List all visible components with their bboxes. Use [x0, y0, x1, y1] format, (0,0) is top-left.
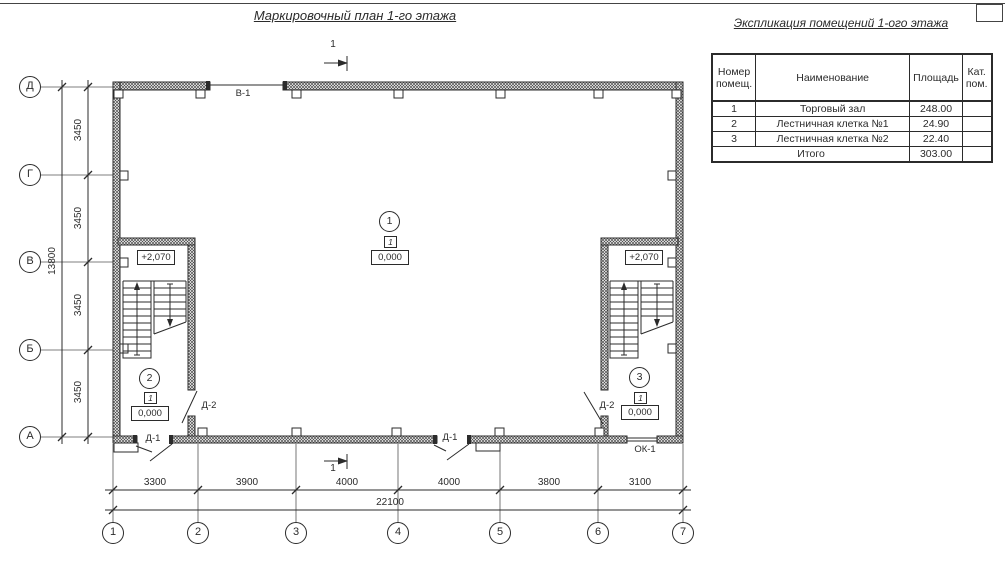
- room-tag-box: 1: [144, 392, 157, 404]
- axis-col-bubble: 7: [672, 522, 694, 544]
- drawing-sheet: Маркировочный план 1-го этажа Экспликаци…: [0, 0, 1005, 565]
- door-label-d2: Д-2: [595, 401, 619, 411]
- dim-bottom-total: 22100: [360, 498, 420, 508]
- window-openings: [210, 85, 657, 441]
- axis-row-bubble: Б: [19, 339, 41, 361]
- window-label-ok1: ОК-1: [629, 445, 661, 455]
- axis-row-bubble: В: [19, 251, 41, 273]
- upper-elevation-box: +2,070: [625, 250, 663, 265]
- dim-bottom-segment: 3300: [125, 478, 185, 488]
- room-number-bubble: 2: [139, 368, 160, 389]
- axis-col-bubble: 4: [387, 522, 409, 544]
- door-label-d1: Д-1: [141, 434, 165, 444]
- dim-bottom-segment: 3800: [519, 478, 579, 488]
- axis-col-bubble: 6: [587, 522, 609, 544]
- staircase-left: [123, 281, 186, 358]
- room-number-bubble: 1: [379, 211, 400, 232]
- room-elevation-box: 0,000: [131, 406, 169, 421]
- dimension-ticks: [58, 83, 687, 514]
- upper-elevation-box: +2,070: [137, 250, 175, 265]
- room-tag-box: 1: [634, 392, 647, 404]
- room-tag-box: 1: [384, 236, 397, 248]
- door-label-d2: Д-2: [197, 401, 221, 411]
- dim-left-segment: 3450: [74, 200, 84, 236]
- axis-row-bubble: А: [19, 426, 41, 448]
- dim-bottom-segment: 3900: [217, 478, 277, 488]
- section-label-top: 1: [325, 40, 341, 50]
- axis-col-bubble: 3: [285, 522, 307, 544]
- window-label-v1: В-1: [228, 89, 258, 99]
- dim-left-segment: 3450: [74, 287, 84, 323]
- dim-left-total: 13800: [48, 239, 58, 283]
- dim-bottom-segment: 3100: [610, 478, 670, 488]
- staircase-right: [610, 281, 673, 358]
- section-label-bottom: 1: [325, 464, 341, 474]
- axis-col-bubble: 2: [187, 522, 209, 544]
- dim-left-segment: 3450: [74, 374, 84, 410]
- section-arrow-top: [324, 56, 348, 71]
- room-elevation-box: 0,000: [371, 250, 409, 265]
- axis-col-bubble: 1: [102, 522, 124, 544]
- dim-bottom-segment: 4000: [419, 478, 479, 488]
- room-number-bubble: 3: [629, 367, 650, 388]
- axis-col-bubble: 5: [489, 522, 511, 544]
- axis-row-bubble: Д: [19, 76, 41, 98]
- dim-bottom-segment: 4000: [317, 478, 377, 488]
- axis-row-bubble: Г: [19, 164, 41, 186]
- room-elevation-box: 0,000: [621, 405, 659, 420]
- dim-left-segment: 3450: [74, 112, 84, 148]
- door-label-d1: Д-1: [438, 433, 462, 443]
- wall-end-caps: [133, 81, 471, 444]
